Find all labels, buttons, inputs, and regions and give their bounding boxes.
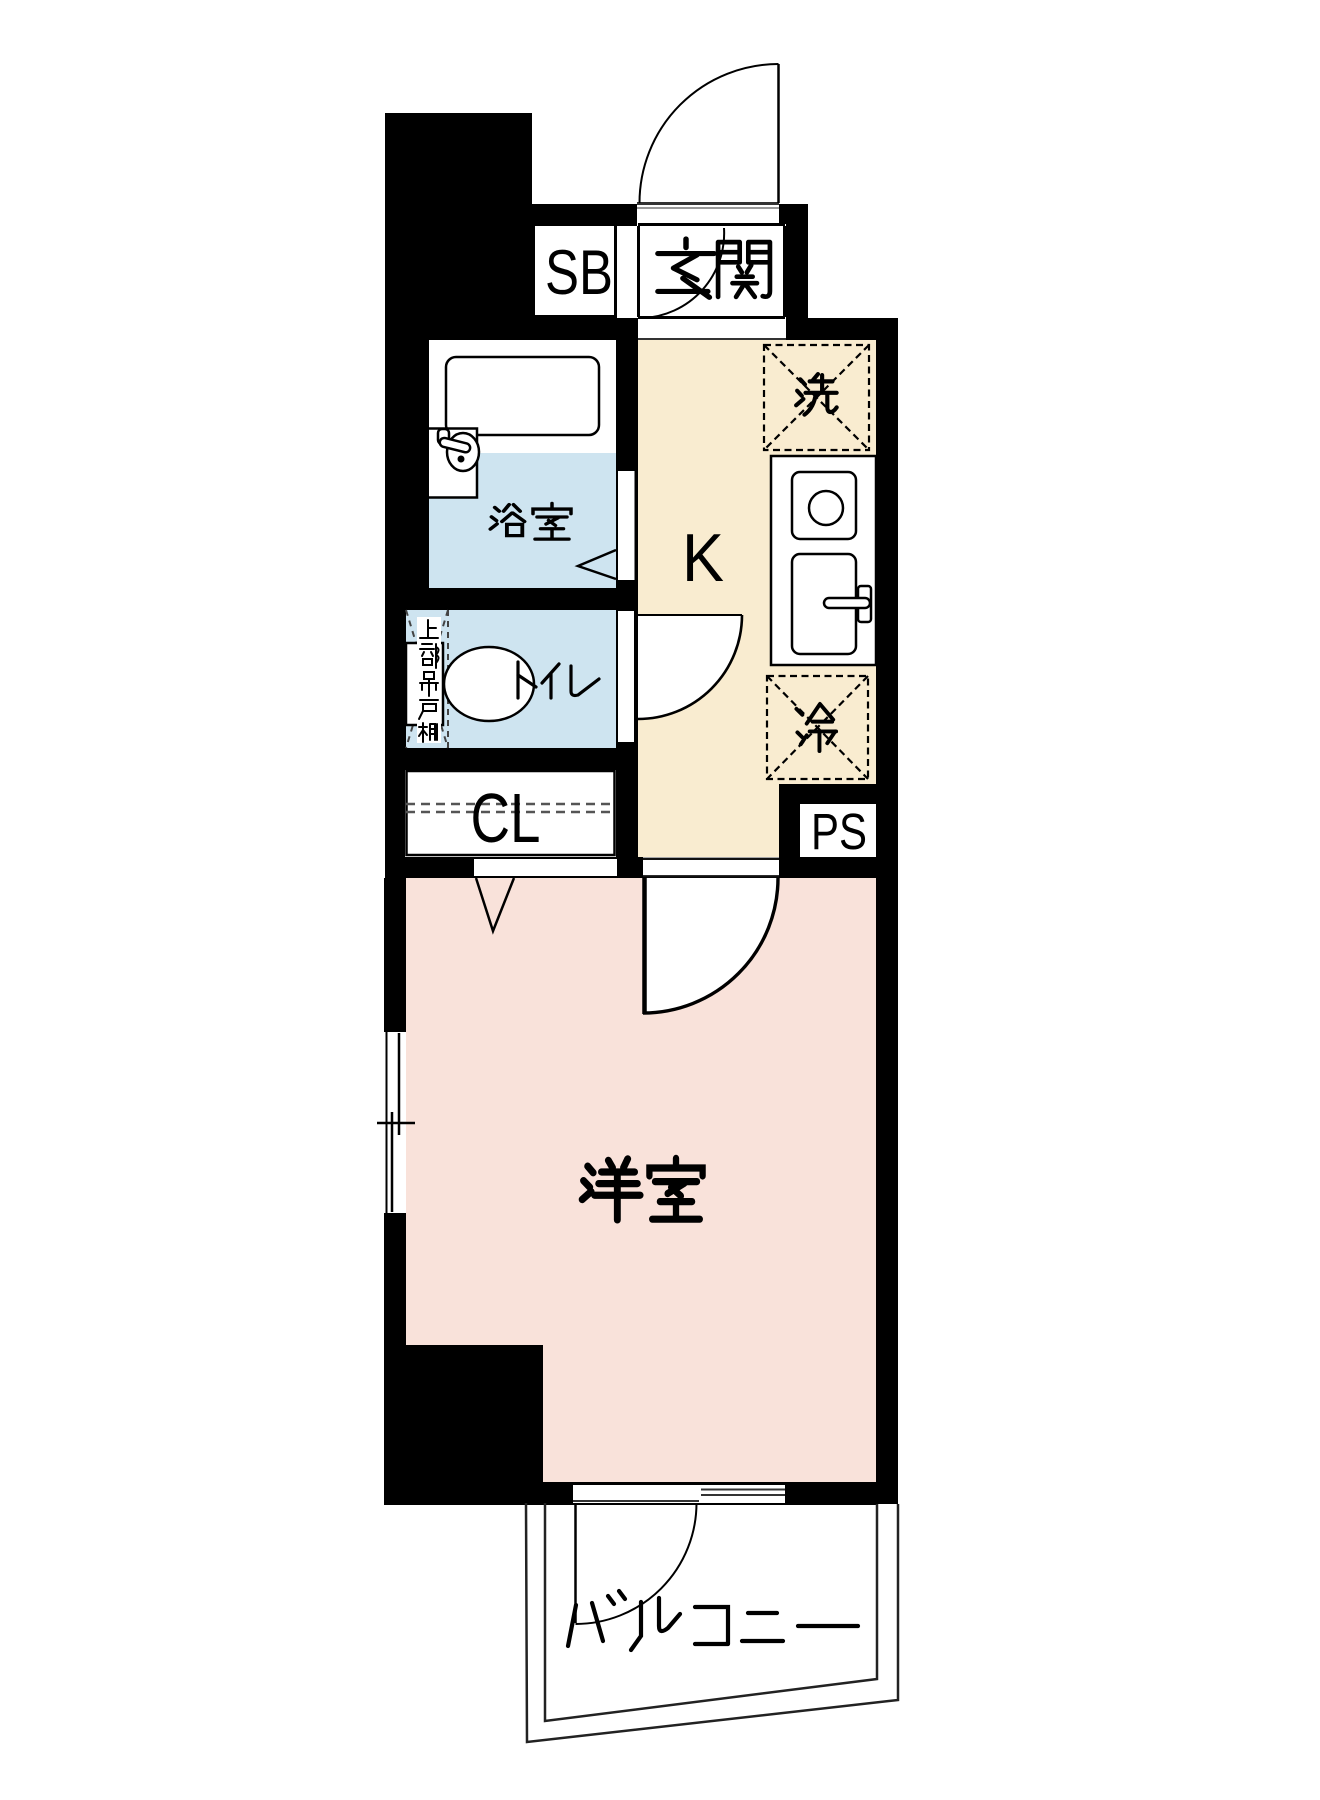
svg-text:PS: PS: [811, 803, 867, 860]
svg-text:CL: CL: [471, 779, 541, 857]
svg-text:K: K: [682, 520, 724, 596]
svg-text:SB: SB: [545, 238, 613, 308]
